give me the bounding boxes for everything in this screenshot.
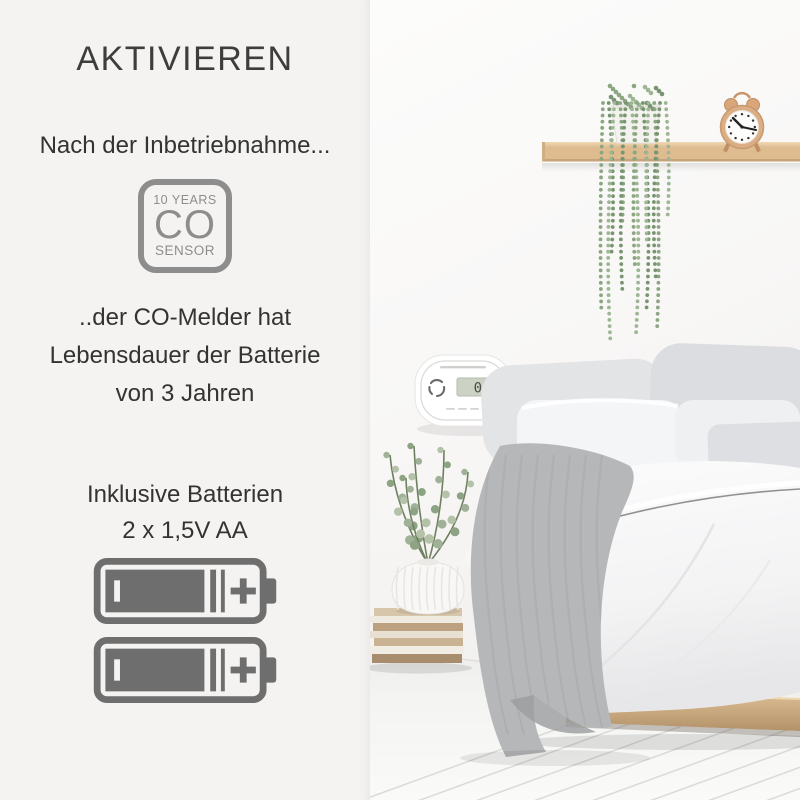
battery-icons <box>0 558 370 703</box>
co-sensor-badge: 10 YEARS CO SENSOR <box>138 179 232 273</box>
bedroom-scene: 0 <box>370 0 800 800</box>
wall-shelf <box>542 142 800 172</box>
detector-top-label <box>440 366 486 368</box>
plant-pot <box>611 106 661 143</box>
lcd-value: 0 <box>474 381 482 397</box>
body-line-1: ..der CO-Melder hat <box>79 304 291 331</box>
bedroom-photo: 0 <box>370 0 800 800</box>
panel-intro: Nach der Inbetriebnahme... <box>0 131 370 161</box>
badge-line-co: CO <box>154 207 216 243</box>
battery-life-text: ..der CO-Melder hat Lebensdauer der Batt… <box>0 299 370 413</box>
included-batteries-text: Inklusive Batterien 2 x 1,5V AA <box>0 477 370 549</box>
body-line-2: Lebensdauer der Batterie <box>50 342 321 369</box>
product-infographic: AKTIVIEREN Nach der Inbetriebnahme... 10… <box>0 0 800 800</box>
batt-note-line-2: 2 x 1,5V AA <box>122 517 247 544</box>
info-panel: AKTIVIEREN Nach der Inbetriebnahme... 10… <box>0 0 370 800</box>
battery-icon <box>92 637 278 703</box>
panel-title: AKTIVIEREN <box>0 40 370 79</box>
batt-note-line-1: Inklusive Batterien <box>87 481 283 508</box>
bed <box>460 342 800 766</box>
body-line-3: von 3 Jahren <box>116 380 255 407</box>
badge-line-sensor: SENSOR <box>155 243 215 258</box>
detector-bottom-label <box>446 408 479 410</box>
battery-icon <box>92 558 278 624</box>
